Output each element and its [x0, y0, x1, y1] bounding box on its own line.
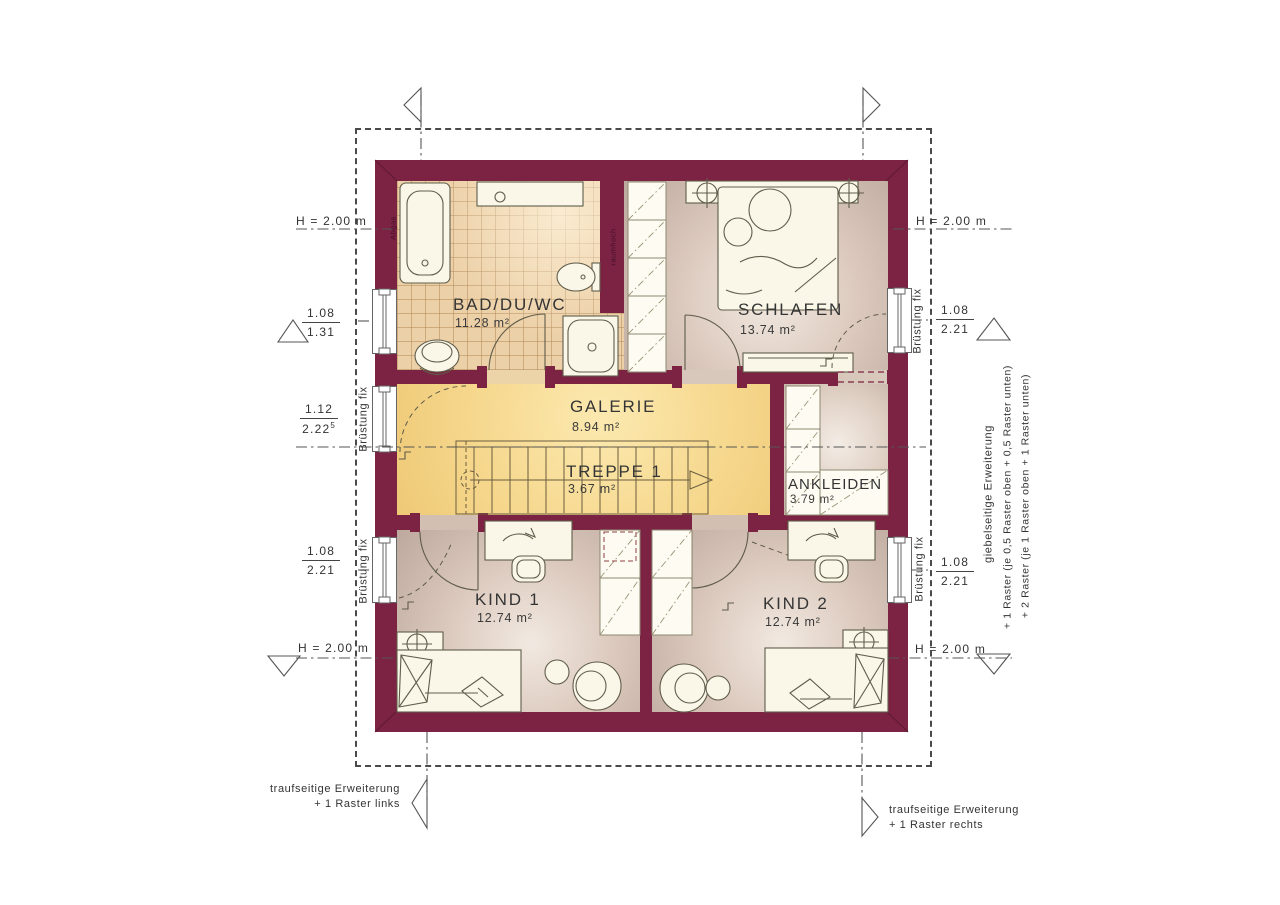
window-galerie: [372, 386, 397, 452]
wall-stub: [828, 366, 838, 386]
height-label-top-right: H = 2.00 m: [916, 214, 987, 228]
window-bathroom: [372, 289, 397, 354]
wall-stub: [477, 366, 487, 388]
height-label-bottom-right: H = 2.00 m: [915, 642, 986, 656]
room-area-ankleiden: 3.79 m²: [790, 494, 835, 506]
giebel-note-line1: giebelseitige Erweiterung: [982, 425, 997, 563]
extension-marker-bottom-right: [862, 798, 878, 836]
room-label-ankleiden: ANKLEIDEN: [788, 476, 882, 493]
wall-stub: [545, 366, 555, 388]
room-area-kind2: 12.74 m²: [765, 615, 821, 629]
section-marker-top-right: [863, 88, 880, 122]
giebel-note-line3: + 2 Raster (je 1 Raster oben + 1 Raster …: [1019, 374, 1034, 618]
room-area-galerie: 8.94 m²: [572, 420, 620, 434]
room-label-treppe: TREPPE 1: [566, 462, 663, 482]
window-kind2: [887, 537, 912, 603]
room-label-bad: BAD/DU/WC: [453, 295, 566, 315]
bruestung-label-kind2: Brüstung fix: [913, 536, 928, 601]
passage-opening-ankleiden: [838, 370, 887, 384]
room-area-schlafen: 13.74 m²: [740, 323, 796, 337]
dim-window-kind1: 1.08 2.21: [302, 544, 340, 577]
bruestung-label-schlafen: Brüstung fix: [911, 288, 926, 353]
dim-marker-right: [977, 318, 1010, 340]
trauf-note-right: traufseitige Erweiterung + 1 Raster rech…: [889, 803, 1099, 833]
room-label-schlafen: SCHLAFEN: [738, 300, 843, 320]
room-area-treppe: 3.67 m²: [568, 482, 616, 496]
giebel-note-line2: + 1 Raster (je 0,5 Raster oben + 0,5 Ras…: [1001, 365, 1016, 629]
abgas-label: Abgas: [389, 216, 398, 240]
window-schlafen: [887, 288, 912, 353]
door-opening-kind2: [692, 515, 748, 530]
wall-galerie-ankleiden: [770, 384, 784, 515]
trauf-note-left: traufseitige Erweiterung + 1 Raster link…: [250, 782, 400, 812]
extension-marker-bottom-left: [412, 779, 427, 828]
dim-window-kind2: 1.08 2.21: [936, 555, 974, 588]
door-opening-kind1: [420, 515, 478, 530]
room-label-kind2: KIND 2: [763, 594, 829, 614]
room-area-kind1: 12.74 m²: [477, 611, 533, 625]
bruestung-label-galerie: Brüstung fix: [357, 386, 372, 451]
section-marker-top-left: [404, 88, 421, 122]
wall-kind1-kind2: [640, 530, 652, 712]
bruestung-label-kind1: Brüstung fix: [357, 538, 372, 603]
dim-window-schlafen: 1.08 2.21: [936, 303, 974, 336]
wall-stub: [672, 366, 682, 388]
raumhoch-label: raumhoch: [609, 228, 618, 265]
floor-plan: .f{fill:#faf7e8;stroke:#5f5c4a;stroke-wi…: [0, 0, 1280, 905]
height-label-top-left: H = 2.00 m: [296, 214, 367, 228]
door-opening-schlafen: [682, 370, 737, 384]
floor-bathroom: [397, 181, 624, 370]
door-opening-bathroom: [487, 370, 545, 384]
dim-window-galerie: 1.12 2.225: [300, 402, 338, 436]
height-marker-bottom-right: [977, 654, 1010, 674]
wall-stub: [682, 513, 692, 532]
height-marker-bottom-left: [268, 656, 300, 676]
window-kind1: [372, 537, 397, 603]
room-label-galerie: GALERIE: [570, 397, 656, 417]
height-label-bottom-left: H = 2.00 m: [298, 641, 369, 655]
wall-stub: [410, 513, 420, 532]
wall-stub: [478, 513, 488, 532]
room-label-kind1: KIND 1: [475, 590, 541, 610]
floor-schlafen: [624, 181, 888, 370]
room-area-bad: 11.28 m²: [455, 316, 510, 330]
wall-middle: [397, 370, 888, 384]
dim-window-bad: 1.08 1.31: [302, 306, 340, 339]
wall-stub: [737, 366, 747, 388]
wall-stub: [748, 513, 758, 532]
